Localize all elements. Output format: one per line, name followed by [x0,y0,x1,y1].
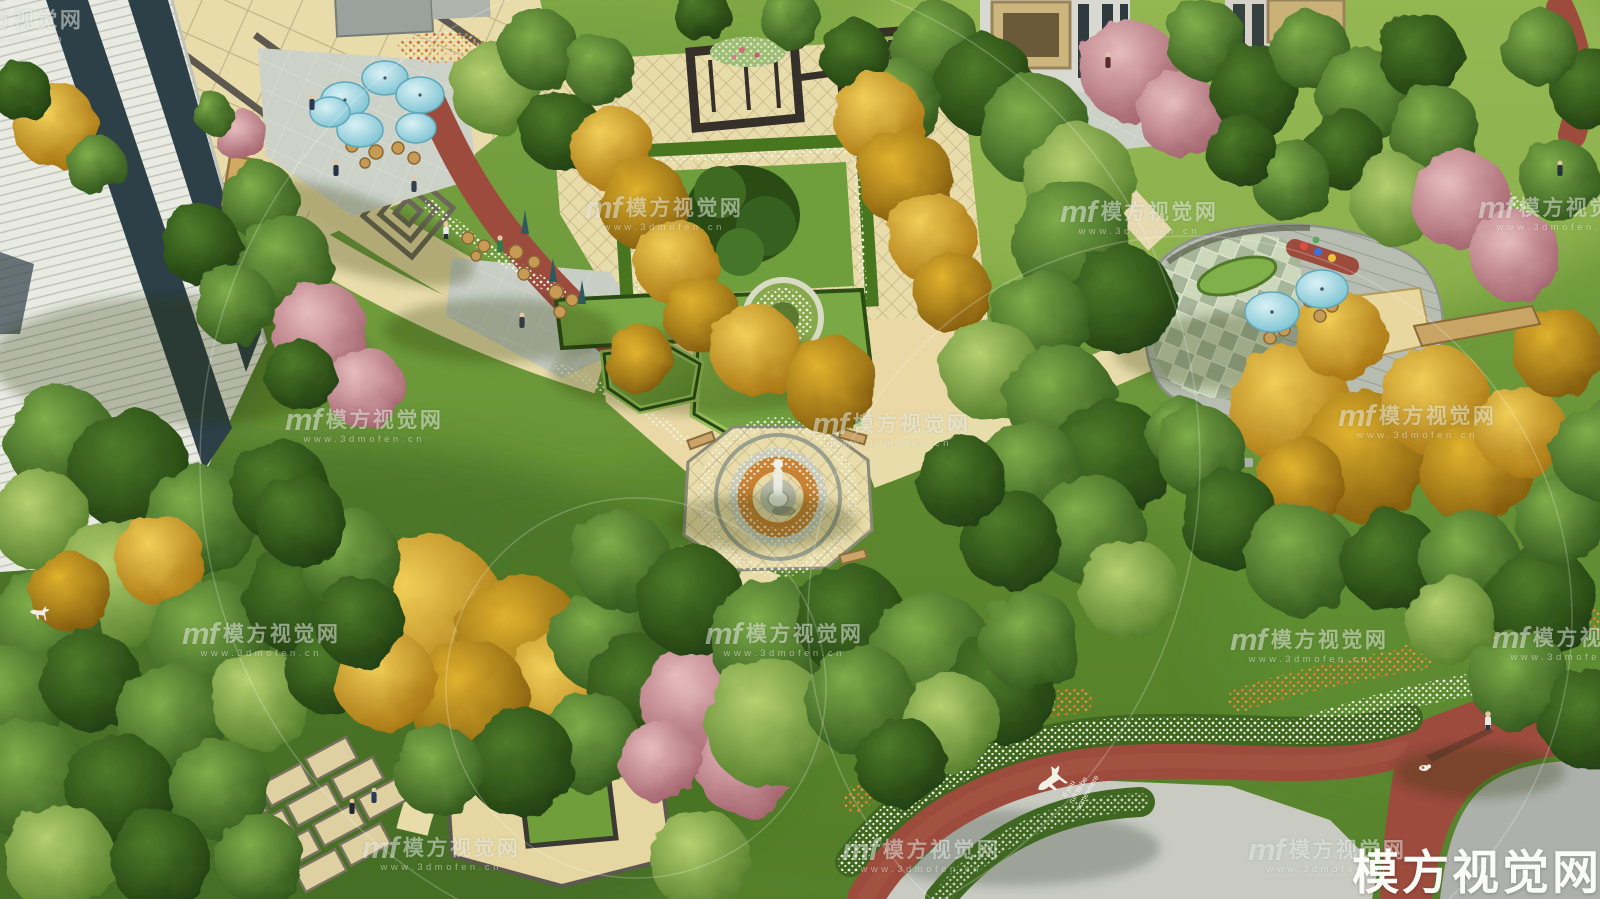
roof [335,0,433,36]
landscape-rendering: If you run to be somewhere [0,0,1600,899]
render-image: If you run to be somewhere mf模方视觉网www.3d… [0,0,1600,899]
roof [431,0,490,19]
